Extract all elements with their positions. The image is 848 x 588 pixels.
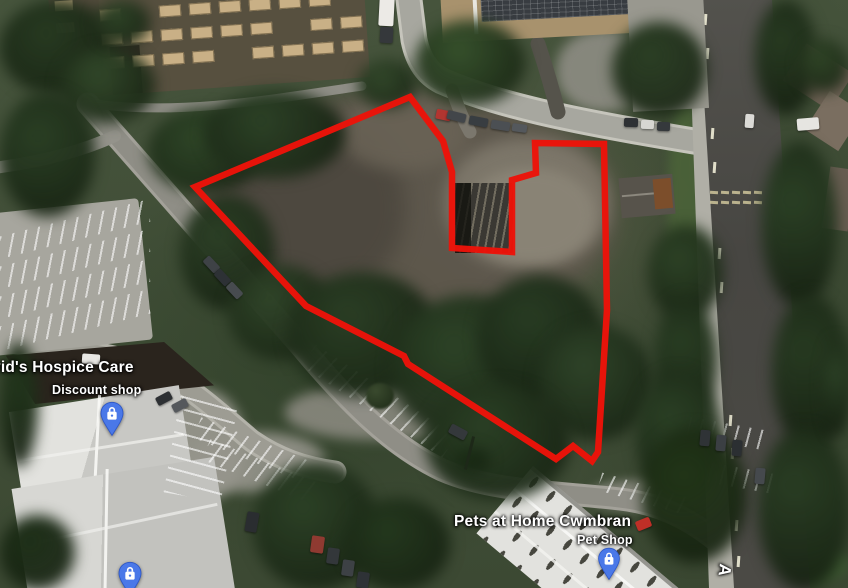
mast <box>464 436 475 470</box>
vehicle <box>171 398 189 413</box>
vehicle <box>715 435 726 452</box>
road-number-label: A <box>714 563 735 578</box>
vehicle <box>512 123 528 133</box>
shopping-bag-pin[interactable] <box>99 401 125 437</box>
satellite-map[interactable]: vid's Hospice Care Discount shop Pets at… <box>0 0 848 588</box>
vehicle <box>641 120 654 129</box>
vehicle <box>448 423 469 440</box>
vehicle <box>155 391 173 406</box>
vehicle <box>731 440 742 457</box>
vehicle <box>468 115 488 127</box>
vehicle <box>490 120 510 132</box>
vehicle <box>635 517 653 532</box>
water-tank <box>366 383 394 409</box>
place-label-hospice-name[interactable]: vid's Hospice Care <box>0 359 134 377</box>
vehicle <box>378 0 394 26</box>
vehicle <box>356 571 370 588</box>
vehicle <box>244 511 259 533</box>
place-label-hospice-category[interactable]: Discount shop <box>52 383 141 397</box>
vehicle <box>699 430 710 447</box>
vehicle <box>225 281 243 300</box>
vehicle <box>754 468 765 485</box>
vehicle <box>341 559 355 577</box>
vehicle <box>380 27 394 44</box>
vehicle <box>446 110 467 123</box>
vehicle <box>657 122 670 131</box>
vehicle <box>310 535 325 554</box>
place-label-pets-name[interactable]: Pets at Home Cwmbran <box>454 513 631 531</box>
vehicle <box>797 117 820 131</box>
shopping-bag-pin[interactable] <box>117 561 143 588</box>
vehicle <box>624 118 638 127</box>
place-label-pets-category[interactable]: Pet Shop <box>577 533 633 547</box>
vehicle <box>745 114 755 129</box>
shopping-bag-pin[interactable] <box>597 547 621 581</box>
vehicle <box>326 547 340 565</box>
